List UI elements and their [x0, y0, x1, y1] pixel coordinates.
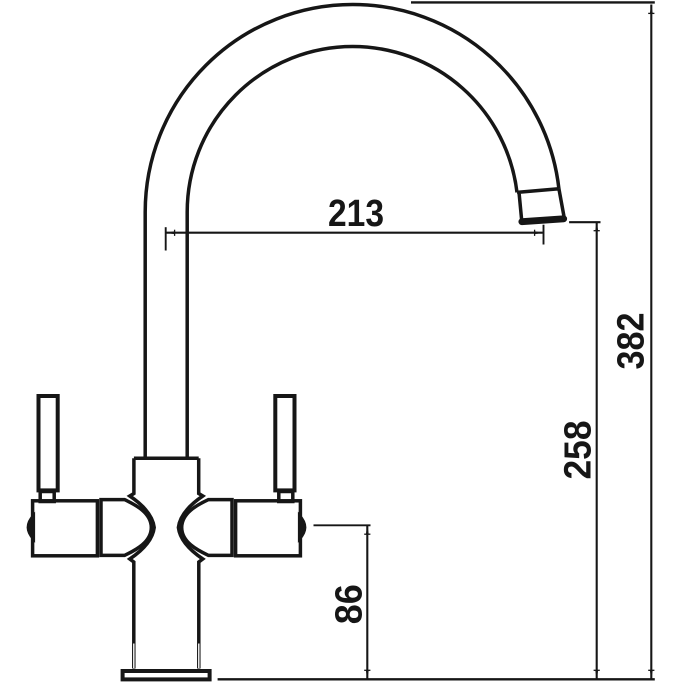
- svg-text:382: 382: [611, 313, 653, 370]
- svg-text:86: 86: [329, 584, 371, 624]
- svg-text:213: 213: [328, 193, 384, 235]
- svg-text:258: 258: [558, 421, 600, 480]
